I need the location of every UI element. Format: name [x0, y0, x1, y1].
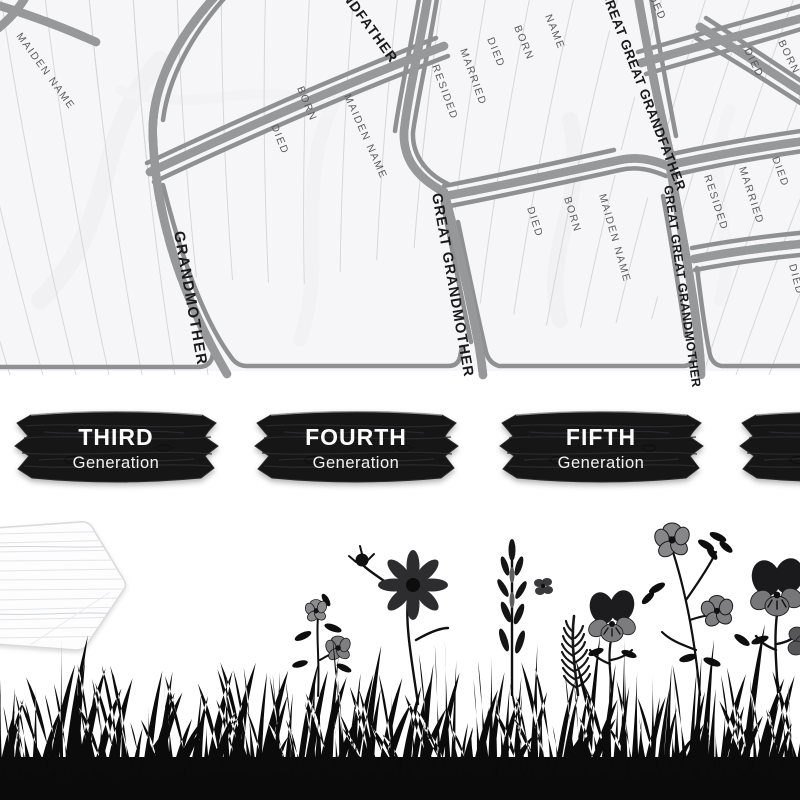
small-blossom	[534, 578, 553, 595]
sign-third-generation: THIRD Generation	[15, 412, 218, 483]
sign-subtitle: Generation	[73, 454, 160, 472]
cosmos-bud	[349, 546, 374, 567]
genealogy-poster: MAIDEN NAME DIED BORN MAIDEN NAME RESIDE…	[0, 0, 800, 800]
sign-fifth-generation: FIFTH Generation	[500, 412, 703, 483]
sign-subtitle: Generation	[313, 454, 400, 472]
sign-title: THIRD	[78, 424, 153, 450]
flower-silhouettes	[291, 523, 800, 704]
poster-canvas: MAIDEN NAME DIED BORN MAIDEN NAME RESIDE…	[0, 0, 800, 800]
grass-silhouette	[0, 624, 800, 800]
rose-sprig	[640, 523, 751, 695]
wild-rose-sprig	[291, 592, 352, 696]
rose-bloom	[699, 596, 734, 629]
rose-bloom	[324, 636, 352, 662]
sign-sixth-generation-partial	[740, 412, 800, 483]
sign-fourth-generation: FOURTH Generation	[255, 412, 458, 483]
sign-title: FOURTH	[305, 424, 407, 450]
pansy	[585, 588, 639, 692]
rose-bloom	[304, 600, 328, 624]
cosmos-flower	[349, 546, 448, 704]
sign-subtitle: Generation	[558, 454, 645, 472]
generation-signs: THIRD Generation FOURTH Generation FIFTH…	[15, 412, 800, 483]
rose-bloom	[653, 523, 692, 560]
arrow-sign	[0, 522, 126, 650]
fan-chart: MAIDEN NAME DIED BORN MAIDEN NAME RESIDE…	[0, 0, 800, 389]
sign-title: FIFTH	[566, 424, 636, 450]
